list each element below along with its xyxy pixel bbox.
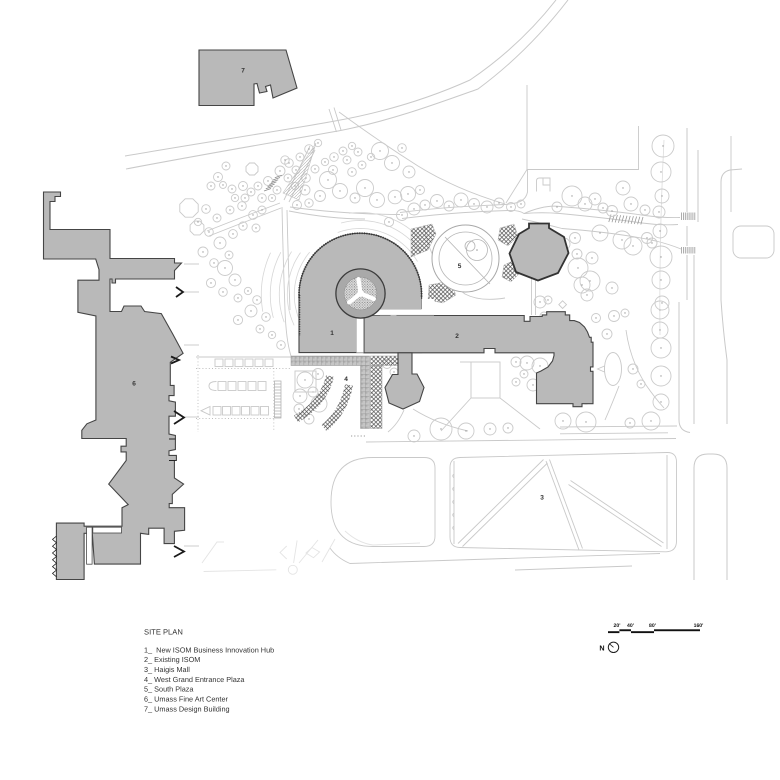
svg-text:6_ Umass Fine Art Center: 6_ Umass Fine Art Center [144,695,229,704]
svg-text:3: 3 [540,495,544,502]
svg-text:4: 4 [344,376,348,383]
svg-text:80': 80' [649,623,656,629]
svg-text:2: 2 [455,333,459,340]
svg-text:1: 1 [330,330,334,337]
svg-text:N: N [599,644,604,653]
svg-text:40': 40' [627,623,634,629]
svg-text:2_ Existing ISOM: 2_ Existing ISOM [144,655,200,664]
svg-text:160': 160' [694,623,704,629]
svg-text:3_ Haigis Mall: 3_ Haigis Mall [144,665,190,674]
svg-text:5_ South Plaza: 5_ South Plaza [144,685,194,694]
svg-text:7: 7 [241,68,245,75]
svg-text:7_ Umass Design Building: 7_ Umass Design Building [144,704,230,713]
svg-text:20': 20' [614,623,621,629]
svg-text:1_ New ISOM Business Innovati: 1_ New ISOM Business Innovation Hub [144,645,274,654]
svg-text:4_ West Grand Entrance Plaza: 4_ West Grand Entrance Plaza [144,675,245,684]
svg-text:6: 6 [132,381,136,388]
svg-text:SITE PLAN: SITE PLAN [144,628,183,637]
svg-text:5: 5 [458,263,462,270]
